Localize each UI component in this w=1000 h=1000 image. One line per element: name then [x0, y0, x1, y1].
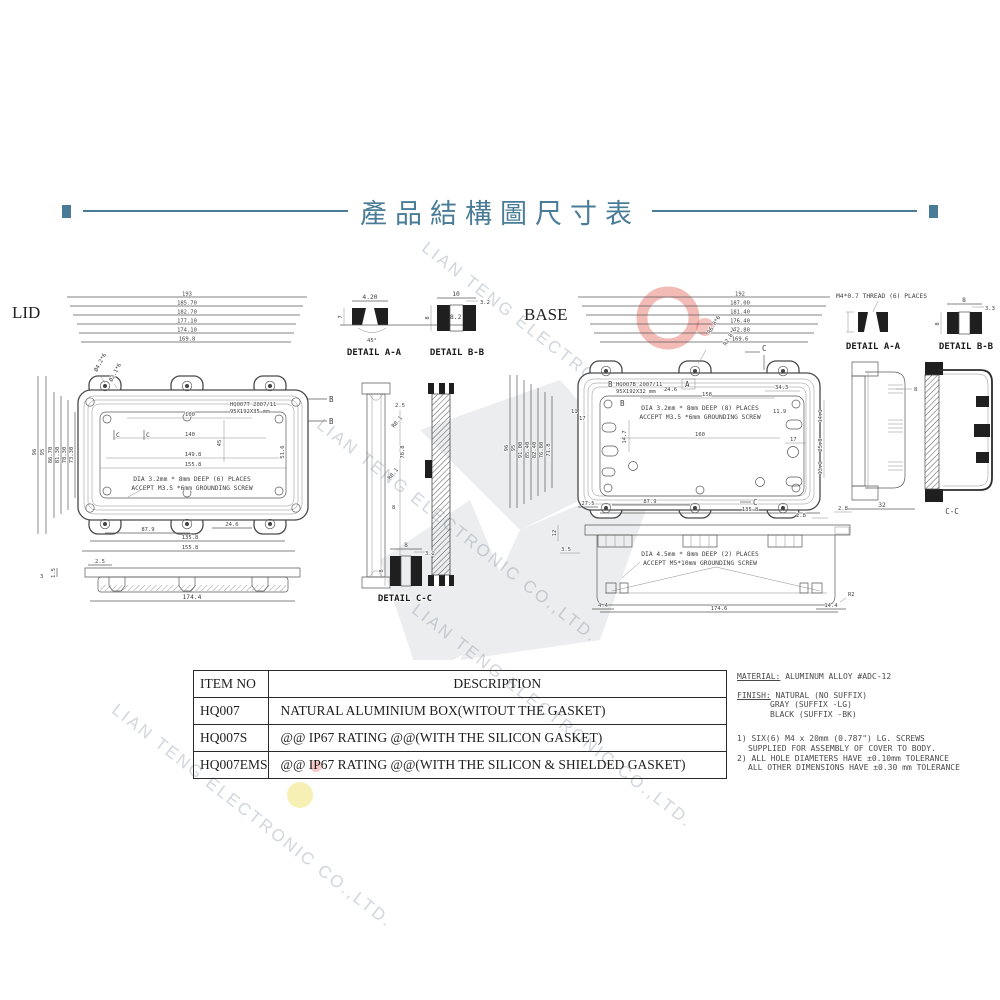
- description-cell: @@ IP67 RATING @@(WITH THE SILICON & SHI…: [268, 752, 726, 779]
- radius-note: R2: [848, 592, 855, 598]
- hole-note: ACCEPT M3.5 *6mm GROUNDING SCREW: [131, 485, 253, 492]
- dim-label: 155.8: [182, 545, 199, 551]
- angle-note: 45°: [367, 338, 377, 344]
- dim-label: 71.8: [546, 443, 552, 456]
- dim-label: 27.5: [581, 501, 594, 507]
- dim-label: 193: [182, 292, 192, 298]
- banner-end-square: [62, 205, 71, 218]
- col-header-item-no: ITEM NO: [194, 671, 269, 698]
- dim-label: 95: [40, 449, 46, 456]
- dim-label: 85.40: [525, 442, 531, 459]
- dim-label: 2.8: [838, 506, 848, 512]
- dim-label: 11: [571, 409, 578, 415]
- detail-label: DETAIL C-C: [378, 594, 432, 604]
- part-number: HQ007T 2007/11: [230, 402, 276, 408]
- hole-callout: Ø2.1*6: [108, 362, 124, 383]
- dim-label: 169.6: [732, 337, 749, 343]
- lid-side-view: 1.5 3 2.5 174.4: [40, 559, 300, 601]
- dim-label: 78.8: [400, 445, 406, 458]
- table-row: HQ007S @@ IP67 RATING @@(WITH THE SILICO…: [194, 725, 727, 752]
- banner-line: [652, 210, 917, 212]
- note-line: 2) ALL HOLE DIAMETERS HAVE ±0.10mm TOLER…: [737, 754, 987, 764]
- detail-bb-left: 10 3.2 8 DETAIL B-B: [425, 291, 490, 358]
- dim-label: 45: [217, 440, 223, 447]
- lid-top-dims: 193 185.70 182.70 177.10 174.10 169.8: [67, 292, 307, 343]
- dim-label: 3.2: [480, 300, 490, 306]
- yellow-logo-blob: [287, 782, 313, 808]
- dim-label: 174.4: [183, 594, 202, 601]
- dim-label: 13.1: [818, 461, 824, 474]
- part-number: HQ007B 2007/11: [616, 382, 662, 388]
- dim-label: 1.5: [51, 568, 57, 578]
- dim-label: 182.70: [177, 310, 197, 316]
- hole-note: DIA 3.2mm * 8mm DEEP (6) PLACES: [133, 476, 251, 483]
- dim-label: 14.1: [818, 409, 824, 422]
- dim-label: 177.10: [177, 319, 197, 325]
- dim-label: 7: [338, 315, 344, 318]
- description-cell: NATURAL ALUMINIUM BOX(WITOUT THE GASKET): [268, 698, 726, 725]
- dim-label: 87.9: [141, 527, 154, 533]
- item-no-cell: HQ007S: [194, 725, 269, 752]
- dim-label: 8: [425, 316, 431, 319]
- dim-label: 8.2: [450, 314, 462, 321]
- tolerance-notes: 1) SIX(6) M4 x 20mm (0.787") LG. SCREWS …: [737, 734, 987, 772]
- detail-label: DETAIL A-A: [347, 348, 402, 358]
- lid-left-dims: 96 95 86.70 81.30 78.30 73.30: [32, 376, 75, 534]
- dim-label: 17: [579, 416, 586, 422]
- page-title: 產品結構圖尺寸表: [360, 192, 640, 231]
- dim-label: 51.6: [280, 445, 286, 458]
- right-details: M4*0.7 THREAD (6) PLACES DETAIL A-A 8 3.…: [836, 293, 995, 516]
- dim-label: 10: [452, 291, 460, 298]
- technical-drawing: LID BASE 193 185.70 182.70 177.10 174.10…: [0, 250, 1000, 660]
- section-marker: B: [329, 417, 334, 426]
- detail-label: DETAIL B-B: [939, 342, 994, 352]
- dim-label: 155.8: [185, 462, 202, 468]
- lid-view-label: LID: [12, 303, 40, 322]
- dim-label: 8: [379, 569, 385, 572]
- dim-label: 14.7: [622, 430, 628, 443]
- hole-note: DIA 3.2mm * 8mm DEEP (8) PLACES: [641, 405, 759, 412]
- title-banner: 產品結構圖尺寸表: [62, 192, 938, 230]
- hole-note: ACCEPT M3.5 *6mm GROUNDING SCREW: [639, 414, 761, 421]
- dim-label: 17: [790, 437, 797, 443]
- material-value: ALUMINUM ALLOY #ADC-12: [785, 672, 891, 681]
- section-marker: C: [753, 498, 758, 507]
- dim-label: 78.30: [62, 447, 68, 464]
- dim-label: 176.40: [730, 319, 750, 325]
- description-cell: @@ IP67 RATING @@(WITH THE SILICON GASKE…: [268, 725, 726, 752]
- dim-label: 135.8: [182, 535, 199, 541]
- dim-label: 82.40: [532, 442, 538, 459]
- dim-label: 2.5: [395, 403, 405, 409]
- dim-label: 8: [962, 297, 966, 304]
- hole-note: ACCEPT M5*10mm GROUNDING SCREW: [643, 560, 757, 567]
- section-marker: C: [116, 432, 120, 439]
- dim-label: 100: [185, 412, 195, 418]
- material-label: MATERIAL:: [737, 672, 780, 681]
- dim-label: 174.10: [177, 328, 197, 334]
- dim-label: 2.8: [796, 513, 806, 519]
- dim-label: 14.4: [824, 603, 838, 609]
- finish-note: FINISH: NATURAL (NO SUFFIX) GRAY (SUFFIX…: [737, 691, 987, 720]
- section-marker: B: [608, 380, 613, 389]
- dim-label: 81.30: [55, 447, 61, 464]
- notes-block: MATERIAL: ALUMINUM ALLOY #ADC-12 FINISH:…: [737, 672, 987, 773]
- dim-label: 135.8: [742, 507, 759, 513]
- item-no-cell: HQ007EMS: [194, 752, 269, 779]
- dim-label: 8: [404, 542, 408, 549]
- radius-note: R0.1: [387, 467, 400, 481]
- red-logo-arc: [642, 292, 694, 344]
- dim-label: 25.8: [818, 438, 824, 451]
- dim-label: 24.6: [225, 522, 238, 528]
- dim-label: 3: [40, 574, 43, 580]
- dim-label: 4.4: [598, 603, 609, 609]
- dim-label: 32: [878, 502, 886, 509]
- dim-label: 4.20: [362, 294, 377, 301]
- dim-label: 8: [935, 322, 941, 325]
- dim-label: 3.3: [985, 306, 995, 312]
- finish-option: BLACK (SUFFIX -BK): [770, 710, 987, 720]
- detail-label: DETAIL B-B: [430, 348, 485, 358]
- section-label: C-C: [945, 507, 959, 516]
- dim-label: 3.5: [561, 547, 571, 553]
- dim-label: 158: [702, 392, 712, 398]
- hole-note: DIA 4.5mm * 8mm DEEP (2) PLACES: [641, 551, 759, 558]
- dim-label: 3.2: [425, 551, 435, 557]
- dim-label: 160: [695, 432, 705, 438]
- dim-label: 96: [32, 449, 38, 456]
- radius-note: R0.1: [391, 415, 404, 429]
- drawing-sheet: { "title": "產品結構圖尺寸表", "watermark": {"te…: [0, 0, 1000, 1000]
- finish-label: FINISH:: [737, 691, 771, 700]
- section-marker: B: [329, 395, 334, 404]
- col-header-description: DESCRIPTION: [268, 671, 726, 698]
- dim-label: 34.3: [775, 385, 788, 391]
- dim-label: 187.00: [730, 301, 750, 307]
- section-marker: C: [146, 432, 150, 439]
- dim-label: 181.40: [730, 310, 750, 316]
- dim-label: 169.8: [179, 337, 196, 343]
- base-view-label: BASE: [524, 305, 567, 324]
- dim-label: 96: [504, 445, 510, 452]
- section-marker: B: [620, 399, 625, 408]
- table-row: HQ007 NATURAL ALUMINIUM BOX(WITOUT THE G…: [194, 698, 727, 725]
- hole-callout: Ø4.2*6: [93, 352, 109, 373]
- dim-label: 185.70: [177, 301, 197, 307]
- dim-label: 2.5: [95, 559, 105, 565]
- dim-label: 140: [185, 432, 195, 438]
- banner-line: [83, 210, 348, 212]
- dim-label: 149.8: [185, 452, 202, 458]
- base-right-dims: 14.1 25.8 13.1: [818, 400, 824, 478]
- item-no-cell: HQ007: [194, 698, 269, 725]
- section-marker: A: [685, 380, 690, 389]
- finish-option: GRAY (SUFFIX -LG): [770, 700, 987, 710]
- dim-label: 73.30: [69, 447, 75, 464]
- note-line: 1) SIX(6) M4 x 20mm (0.787") LG. SCREWS: [737, 734, 987, 744]
- finish-value: NATURAL (NO SUFFIX): [776, 691, 868, 700]
- dim-label: 12: [552, 530, 558, 537]
- dim-label: 8: [914, 387, 917, 393]
- dim-label: 86.70: [48, 447, 54, 464]
- dim-label: 11.9: [773, 409, 786, 415]
- dim-label: 91.00: [518, 442, 524, 459]
- dim-label: 87.9: [643, 499, 656, 505]
- item-table: ITEM NO DESCRIPTION HQ007 NATURAL ALUMIN…: [193, 670, 727, 779]
- dim-label: 174.6: [711, 606, 728, 612]
- part-size: 95X192X35 mm: [230, 409, 270, 415]
- thread-note: M4*0.7 THREAD (6) PLACES: [836, 293, 927, 300]
- table-header-row: ITEM NO DESCRIPTION: [194, 671, 727, 698]
- note-line: ALL OTHER DIMENSIONS HAVE ±0.30 mm TOLER…: [748, 763, 987, 773]
- detail-label: DETAIL A-A: [846, 342, 901, 352]
- dim-label: 8: [392, 505, 395, 511]
- table-row: HQ007EMS @@ IP67 RATING @@(WITH THE SILI…: [194, 752, 727, 779]
- material-note: MATERIAL: ALUMINUM ALLOY #ADC-12: [737, 672, 987, 682]
- dim-label: 95: [511, 445, 517, 452]
- banner-end-square: [929, 205, 938, 218]
- dim-label: 24.6: [664, 387, 677, 393]
- dim-label: 192: [735, 292, 745, 298]
- section-marker: C: [762, 344, 767, 353]
- part-size: 95X192X32 mm: [616, 389, 656, 395]
- dim-label: 76.80: [539, 442, 545, 459]
- lid-plate-text: HQ007T 2007/11 95X192X35 mm: [230, 402, 276, 415]
- note-line: SUPPLIED FOR ASSEMBLY OF COVER TO BODY.: [748, 744, 987, 754]
